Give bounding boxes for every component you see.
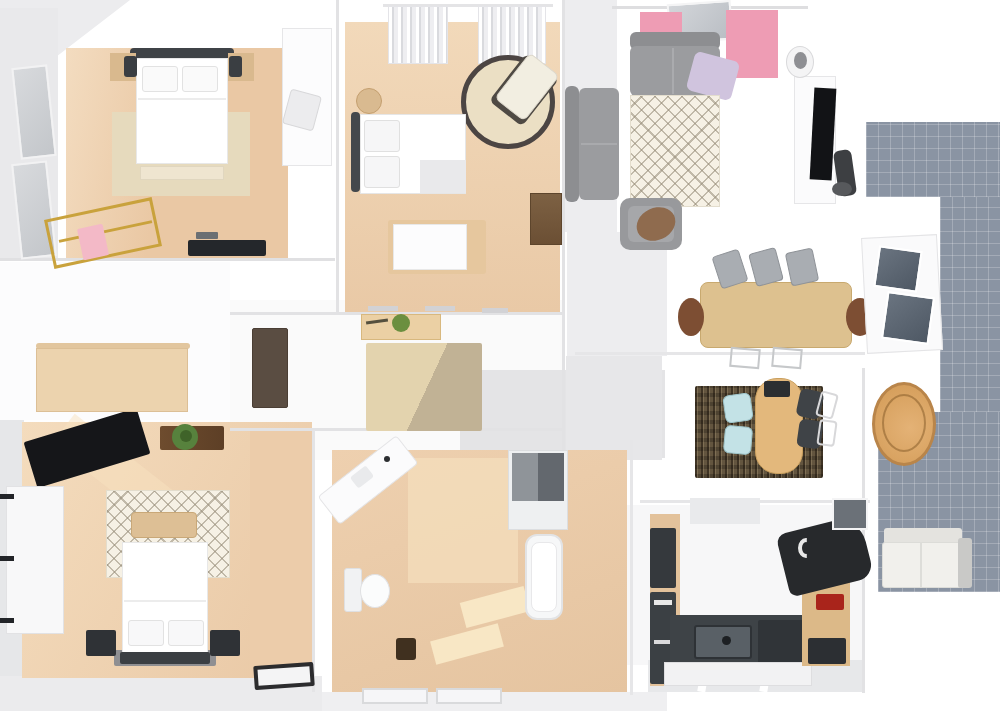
b3-window-bar-2 — [0, 556, 14, 561]
office-chair-wire-2 — [816, 419, 837, 447]
dining-chair-top-3 — [785, 247, 819, 286]
b3-plant-center — [180, 430, 192, 442]
balcony-sofa-arm — [958, 538, 972, 588]
b1-duvet-line — [138, 98, 226, 100]
floor-plan-viewport — [0, 0, 1000, 711]
b1-lamp-right — [229, 56, 242, 77]
wall-line-v2 — [562, 0, 565, 462]
corridor-floor — [250, 430, 312, 678]
wall-line-h4 — [575, 352, 865, 355]
b3-shelf-unit — [6, 486, 64, 634]
lv-diamond-rug — [630, 95, 720, 207]
b2-bed-gray-corner — [420, 160, 466, 193]
b1-console-dark — [188, 240, 266, 256]
wall-line-h1 — [0, 258, 335, 261]
kitchen-window-dark — [832, 498, 868, 530]
b3-nightstand-left — [86, 630, 116, 656]
dining-bay-glass-2 — [881, 291, 935, 345]
bath-tub-inner — [531, 542, 557, 612]
lv-floor-lamp-shade — [794, 52, 807, 69]
b2-cabinet — [530, 193, 562, 245]
b1-pillow-2 — [182, 66, 218, 92]
b1-bed-bench — [140, 166, 224, 180]
b1-pillow-1 — [142, 66, 178, 92]
kitchen-faucet — [722, 636, 731, 645]
b1-lamp-left — [124, 56, 137, 77]
bath-window-2 — [436, 688, 502, 704]
b2-daybed-mattress — [393, 224, 467, 270]
b2-pillow-1 — [364, 120, 400, 152]
wall-line-v3 — [312, 430, 315, 692]
balcony-sofa-seam — [920, 542, 922, 588]
b3-pillow-2 — [168, 620, 204, 646]
staircase — [36, 348, 188, 412]
dimension-mark-2 — [425, 306, 455, 311]
b3-window-bar-1 — [0, 494, 14, 499]
b2-bed-headboard — [351, 112, 360, 192]
office-laptop — [764, 381, 790, 397]
dimension-mark-1 — [368, 306, 398, 311]
b3-bed-headboard — [120, 652, 210, 664]
b3-bench — [131, 512, 197, 538]
balcony-tiles-top — [866, 122, 1000, 197]
kitchen-cabinet-front — [664, 662, 812, 686]
bath-trash-can — [396, 638, 416, 660]
hall-console-plant — [392, 314, 410, 332]
office-left-shade — [566, 356, 662, 460]
kitchen-top-wall-gray — [690, 498, 760, 524]
hall-door-dark — [252, 328, 288, 408]
b2-pillow-2 — [364, 156, 400, 188]
dining-table — [700, 282, 852, 348]
office-chair-blue-1 — [722, 392, 754, 424]
wall-line-v1 — [336, 0, 339, 312]
hall-rug — [366, 343, 482, 431]
lv-sofa-left-back — [565, 86, 579, 202]
b2-side-table — [356, 88, 382, 114]
b3-nightstand-right — [210, 630, 240, 656]
kitchen-oven-handle-1 — [654, 600, 672, 605]
b3-window-bar-3 — [0, 618, 14, 623]
bath-shower-fixture — [538, 453, 564, 501]
office-chair-blue-2 — [723, 425, 753, 455]
bath-sun-patch-big — [408, 458, 518, 583]
b3-duvet-line — [124, 600, 206, 602]
lv-sofa-left-seam — [581, 143, 617, 145]
b3-pillow-1 — [128, 620, 164, 646]
dining-chair-end-left — [678, 298, 704, 336]
dining-bay-glass-1 — [873, 245, 922, 293]
kitchen-tall-unit-1 — [650, 528, 676, 588]
b2-curtain-left — [388, 6, 448, 64]
lv-cat-tree-base — [832, 182, 852, 196]
kitchen-coffee-machine — [816, 594, 844, 610]
balcony-tiles-right — [940, 197, 1000, 412]
entry-doormat — [253, 662, 315, 690]
balcony-sofa-seat — [882, 542, 964, 588]
kitchen-appliance-dark — [808, 638, 846, 664]
dining-chair-bottom-1 — [729, 347, 761, 370]
dining-left-shade — [567, 232, 667, 356]
wall-line-v5 — [862, 368, 865, 693]
bath-vanity-tap — [384, 456, 390, 462]
lv-sofa-top-seam — [672, 48, 674, 94]
dining-chair-bottom-2 — [771, 347, 803, 370]
bath-toilet-bowl — [360, 574, 390, 608]
wall-line-v4 — [630, 440, 633, 695]
dimension-mark-3 — [482, 308, 508, 313]
bath-window-1 — [362, 688, 428, 704]
b1-console-items — [196, 232, 218, 239]
floor-plan-canvas — [0, 0, 1000, 711]
balcony-hanging-chair-ring — [882, 394, 926, 452]
